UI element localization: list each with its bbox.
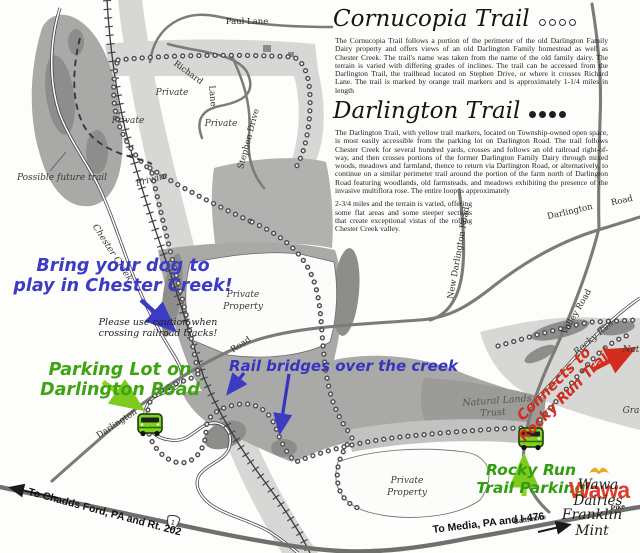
dog-note: Bring your dog to play in Chester Creek! (8, 256, 238, 296)
trail-marker-filled-icon (549, 111, 556, 118)
trail-marker-open-icon (549, 19, 556, 26)
darlington-trail-section: Darlington Trail The Darlington Trail, w… (333, 98, 633, 234)
wawa-dairies-label: Wawa Dairies (552, 477, 640, 509)
cornucopia-trail-marker-icons (539, 19, 576, 26)
darlington-trail-description-continued: 2-3/4 miles and the terrain is varied, o… (335, 200, 472, 233)
darlington-trail-marker-icons (529, 111, 566, 118)
cornucopia-title-text: Cornucopia Trail (333, 6, 530, 32)
trail-marker-open-icon (539, 19, 546, 26)
darlington-title-text: Darlington Trail (333, 98, 520, 124)
caution-note: Please use caution when crossing railroa… (83, 317, 233, 339)
cornucopia-trail-section: Cornucopia Trail The Cornucopia Trail fo… (333, 6, 633, 95)
darlington-trail-title: Darlington Trail (333, 98, 633, 124)
rail-bridges-note: Rail bridges over the creek (229, 357, 479, 375)
trail-marker-filled-icon (539, 111, 546, 118)
trail-marker-filled-icon (559, 111, 566, 118)
trail-marker-open-icon (569, 19, 576, 26)
cornucopia-trail-description: The Cornucopia Trail follows a portion o… (335, 37, 608, 95)
trail-marker-filled-icon (529, 111, 536, 118)
trail-map-page: 1 Paul LaneRichardLanePrivatePrivatePriv… (0, 0, 640, 553)
goose-icon (588, 464, 610, 475)
darlington-parking-note: Parking Lot on Darlington Road (25, 360, 215, 400)
cornucopia-trail-title: Cornucopia Trail (333, 6, 633, 32)
darlington-trail-description: The Darlington Trail, with yellow trail … (335, 129, 608, 195)
parking-car-darlington-icon (138, 414, 162, 436)
trail-marker-open-icon (559, 19, 566, 26)
